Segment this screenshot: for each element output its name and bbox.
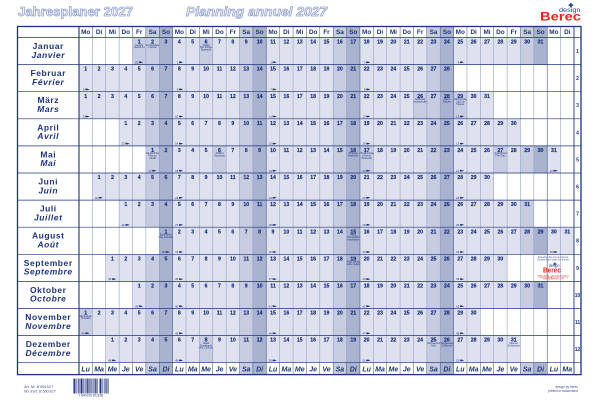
svg-text:6: 6: [205, 284, 208, 290]
svg-text:Do: Do: [402, 29, 411, 36]
svg-text:29: 29: [498, 121, 504, 127]
svg-text:6: 6: [151, 67, 154, 73]
svg-text:No d’art. B 5603/27: No d’art. B 5603/27: [24, 389, 57, 393]
svg-text:So: So: [349, 29, 357, 36]
svg-text:Pâques: Pâques: [443, 101, 452, 103]
svg-text:9: 9: [218, 338, 221, 344]
svg-text:30: 30: [484, 175, 490, 181]
svg-text:22: 22: [390, 256, 396, 262]
svg-text:28: 28: [484, 202, 490, 208]
svg-text:9: 9: [245, 40, 248, 46]
svg-text:24: 24: [444, 284, 450, 290]
svg-text:19: 19: [350, 338, 356, 344]
svg-text:10: 10: [175, 115, 179, 119]
svg-text:1: 1: [124, 202, 127, 208]
svg-text:7: 7: [218, 40, 221, 46]
svg-text:7: 7: [205, 202, 208, 208]
svg-text:17: 17: [456, 142, 460, 146]
svg-text:22: 22: [431, 148, 437, 154]
svg-text:Sa: Sa: [242, 367, 251, 374]
svg-text:15: 15: [270, 311, 276, 317]
svg-text:4: 4: [124, 94, 127, 100]
svg-text:2: 2: [98, 94, 101, 100]
svg-text:So: So: [162, 29, 170, 36]
svg-text:9: 9: [245, 284, 248, 290]
svg-text:Ma: Ma: [188, 367, 198, 374]
svg-text:31: 31: [175, 250, 179, 254]
svg-text:11: 11: [257, 121, 263, 127]
svg-text:9: 9: [191, 311, 194, 317]
svg-text:6: 6: [178, 338, 181, 344]
svg-text:5: 5: [178, 202, 181, 208]
svg-text:30: 30: [524, 40, 530, 46]
svg-text:31: 31: [538, 40, 544, 46]
svg-text:9: 9: [231, 121, 234, 127]
svg-text:10: 10: [243, 121, 249, 127]
svg-text:14: 14: [257, 311, 263, 317]
svg-text:7: 7: [245, 229, 248, 235]
svg-text:15: 15: [324, 40, 330, 46]
svg-text:33: 33: [362, 250, 366, 254]
svg-text:11: 11: [217, 94, 223, 100]
svg-text:18: 18: [175, 169, 179, 173]
svg-text:27: 27: [457, 338, 463, 344]
svg-text:24: 24: [471, 229, 477, 235]
svg-text:8: 8: [205, 256, 208, 262]
svg-text:24: 24: [417, 256, 423, 262]
svg-text:26: 26: [471, 284, 477, 290]
svg-text:24: 24: [390, 311, 396, 317]
svg-text:3: 3: [111, 94, 114, 100]
svg-text:24: 24: [431, 121, 437, 127]
svg-text:31: 31: [538, 284, 544, 290]
svg-text:34: 34: [456, 250, 460, 254]
svg-text:21: 21: [390, 121, 396, 127]
svg-text:4: 4: [165, 121, 168, 127]
svg-text:Mai: Mai: [40, 158, 56, 168]
svg-text:14: 14: [297, 121, 303, 127]
svg-text:2: 2: [165, 148, 168, 154]
svg-text:9: 9: [191, 67, 194, 73]
svg-text:3: 3: [165, 284, 168, 290]
svg-text:10: 10: [270, 148, 276, 154]
svg-text:2: 2: [576, 76, 579, 82]
svg-text:10: 10: [203, 311, 209, 317]
svg-text:Di: Di: [256, 367, 264, 374]
svg-text:Lu: Lu: [456, 367, 465, 374]
svg-text:27: 27: [484, 284, 490, 290]
svg-text:Di: Di: [537, 367, 545, 374]
svg-text:8: 8: [218, 202, 221, 208]
svg-text:19: 19: [364, 202, 370, 208]
svg-text:Sa: Sa: [523, 29, 531, 36]
svg-text:22: 22: [404, 202, 410, 208]
svg-text:Pentecôte: Pentecôte: [361, 157, 372, 160]
svg-text:10: 10: [230, 338, 236, 344]
svg-text:29: 29: [484, 256, 490, 262]
svg-text:Septembre: Septembre: [24, 267, 73, 277]
svg-text:15: 15: [337, 148, 343, 154]
svg-text:5: 5: [151, 175, 154, 181]
svg-text:Sa: Sa: [242, 29, 250, 36]
svg-text:Lu: Lu: [362, 367, 371, 374]
svg-text:19: 19: [377, 40, 383, 46]
svg-text:13: 13: [297, 40, 303, 46]
svg-text:37: 37: [269, 277, 273, 281]
svg-text:14: 14: [270, 175, 276, 181]
svg-text:27: 27: [175, 223, 179, 227]
svg-text:23: 23: [377, 311, 383, 317]
svg-text:Di: Di: [350, 367, 358, 374]
svg-text:17: 17: [350, 40, 356, 46]
svg-text:Rendez-nous visite sur Interne: Rendez-nous visite sur Internet:: [537, 258, 570, 261]
svg-text:26: 26: [498, 229, 504, 235]
svg-text:26: 26: [471, 40, 477, 46]
svg-text:24: 24: [269, 196, 273, 200]
svg-text:12: 12: [257, 338, 263, 344]
svg-text:10: 10: [217, 175, 223, 181]
svg-text:24: 24: [417, 338, 423, 344]
svg-text:6: 6: [576, 184, 579, 190]
svg-text:4: 4: [165, 202, 168, 208]
svg-text:20: 20: [364, 338, 370, 344]
svg-text:46: 46: [269, 331, 273, 335]
svg-text:5: 5: [576, 157, 579, 163]
svg-text:17: 17: [337, 202, 343, 208]
svg-text:Fête-Dieu: Fête-Dieu: [495, 155, 506, 158]
svg-text:10: 10: [230, 256, 236, 262]
svg-text:9: 9: [218, 256, 221, 262]
svg-text:43: 43: [456, 304, 460, 308]
svg-text:Août: Août: [36, 240, 59, 250]
svg-text:29: 29: [511, 284, 517, 290]
svg-text:7: 7: [165, 67, 168, 73]
svg-text:3: 3: [151, 121, 154, 127]
svg-text:Do: Do: [215, 29, 224, 36]
svg-text:Ma: Ma: [469, 367, 479, 374]
svg-text:28: 28: [269, 223, 273, 227]
svg-text:29: 29: [362, 223, 366, 227]
svg-text:Ve: Ve: [416, 367, 424, 374]
svg-text:1: 1: [576, 49, 579, 55]
svg-text:18: 18: [350, 121, 356, 127]
svg-text:4: 4: [191, 148, 194, 154]
svg-text:52: 52: [456, 359, 460, 363]
svg-text:13: 13: [243, 94, 249, 100]
svg-text:12: 12: [230, 67, 236, 73]
svg-text:21: 21: [350, 311, 356, 317]
svg-text:8: 8: [178, 94, 181, 100]
svg-text:Décembre: Décembre: [25, 348, 71, 358]
svg-text:Sa: Sa: [336, 29, 344, 36]
svg-text:18: 18: [310, 94, 316, 100]
svg-text:1: 1: [84, 67, 87, 73]
svg-text:14: 14: [175, 142, 179, 146]
svg-text:Janvier: Janvier: [31, 50, 65, 60]
svg-text:23: 23: [444, 148, 450, 154]
svg-text:Jeûne fédéral: Jeûne fédéral: [346, 263, 360, 266]
svg-text:15: 15: [283, 175, 289, 181]
svg-text:11: 11: [284, 148, 290, 154]
svg-text:30: 30: [162, 250, 166, 254]
svg-text:23: 23: [377, 67, 383, 73]
svg-text:15: 15: [297, 338, 303, 344]
svg-text:11: 11: [243, 338, 249, 344]
svg-text:13: 13: [283, 202, 289, 208]
svg-text:29: 29: [484, 338, 490, 344]
svg-text:20: 20: [390, 284, 396, 290]
svg-text:26: 26: [456, 196, 460, 200]
svg-text:21: 21: [390, 202, 396, 208]
svg-text:18: 18: [324, 175, 330, 181]
svg-text:29: 29: [498, 202, 504, 208]
svg-text:Ve: Ve: [510, 367, 518, 374]
svg-text:Me: Me: [482, 367, 492, 374]
svg-text:2 janvier: 2 janvier: [148, 46, 157, 49]
svg-text:41: 41: [269, 304, 273, 308]
svg-text:Di: Di: [470, 29, 477, 36]
svg-text:Do: Do: [496, 29, 505, 36]
svg-text:23: 23: [404, 338, 410, 344]
svg-text:15: 15: [270, 67, 276, 73]
svg-text:11: 11: [297, 229, 303, 235]
svg-text:4: 4: [178, 284, 181, 290]
svg-text:11: 11: [217, 67, 223, 73]
svg-text:30: 30: [498, 338, 504, 344]
svg-text:11: 11: [269, 115, 272, 119]
svg-text:16: 16: [362, 142, 366, 146]
svg-text:20: 20: [364, 256, 370, 262]
svg-text:23: 23: [417, 202, 423, 208]
svg-text:9: 9: [231, 202, 234, 208]
svg-text:21: 21: [417, 148, 423, 154]
svg-text:21: 21: [404, 40, 410, 46]
svg-text:32: 32: [269, 250, 273, 254]
svg-text:14: 14: [257, 67, 263, 73]
svg-text:25: 25: [362, 196, 366, 200]
svg-text:20: 20: [417, 229, 423, 235]
svg-text:5: 5: [138, 311, 141, 317]
svg-text:20: 20: [337, 67, 343, 73]
svg-text:Sa: Sa: [336, 367, 345, 374]
svg-text:8: 8: [178, 67, 181, 73]
svg-text:6: 6: [151, 94, 154, 100]
svg-text:12: 12: [310, 229, 316, 235]
svg-text:Fr: Fr: [323, 29, 330, 36]
svg-text:8: 8: [576, 239, 579, 245]
svg-text:14: 14: [283, 338, 289, 344]
svg-text:Mo: Mo: [175, 29, 184, 36]
svg-text:16: 16: [283, 311, 289, 317]
svg-text:Mi: Mi: [203, 29, 210, 36]
svg-text:22: 22: [95, 196, 99, 200]
svg-text:Je: Je: [216, 367, 224, 374]
svg-text:Do: Do: [309, 29, 318, 36]
svg-text:Je: Je: [309, 367, 317, 374]
svg-text:22: 22: [377, 175, 383, 181]
svg-text:19: 19: [324, 94, 330, 100]
svg-text:13: 13: [310, 148, 316, 154]
svg-text:16: 16: [324, 121, 330, 127]
svg-text:Je: Je: [497, 367, 505, 374]
svg-text:11: 11: [217, 311, 223, 317]
svg-text:Octobre: Octobre: [30, 294, 66, 304]
svg-text:14: 14: [283, 256, 289, 262]
svg-text:13: 13: [243, 311, 249, 317]
svg-text:9: 9: [576, 266, 579, 272]
svg-text:23: 23: [404, 256, 410, 262]
svg-text:Ma: Ma: [281, 367, 291, 374]
svg-text:11: 11: [230, 175, 236, 181]
svg-text:28: 28: [444, 311, 450, 317]
svg-text:19: 19: [390, 148, 396, 154]
svg-text:Me: Me: [201, 367, 211, 374]
svg-text:26: 26: [122, 223, 126, 227]
svg-text:22: 22: [404, 121, 410, 127]
svg-text:7: 7: [191, 256, 194, 262]
svg-text:30: 30: [524, 284, 530, 290]
svg-text:12: 12: [230, 311, 236, 317]
svg-text:14: 14: [337, 229, 343, 235]
svg-text:29: 29: [511, 40, 517, 46]
svg-text:45: 45: [175, 331, 179, 335]
svg-text:20: 20: [337, 311, 343, 317]
svg-text:Berec: Berec: [543, 268, 561, 275]
svg-text:12: 12: [362, 115, 366, 119]
svg-text:23: 23: [457, 229, 463, 235]
svg-text:So: So: [256, 29, 264, 36]
svg-text:7: 7: [576, 212, 579, 218]
svg-text:17: 17: [337, 121, 343, 127]
svg-text:Sa: Sa: [148, 367, 157, 374]
svg-text:Ve: Ve: [229, 367, 237, 374]
svg-text:30: 30: [471, 311, 477, 317]
svg-text:6: 6: [191, 121, 194, 127]
svg-text:21: 21: [350, 67, 356, 73]
svg-text:11: 11: [257, 202, 263, 208]
svg-text:25: 25: [444, 121, 450, 127]
svg-text:48: 48: [108, 359, 112, 363]
svg-text:16: 16: [324, 202, 330, 208]
svg-text:Avril: Avril: [36, 131, 59, 141]
svg-text:26: 26: [457, 202, 463, 208]
svg-text:So: So: [443, 29, 451, 36]
svg-text:Berec: Berec: [540, 10, 581, 24]
svg-text:18: 18: [364, 40, 370, 46]
svg-text:13: 13: [122, 142, 126, 146]
svg-text:Me: Me: [389, 367, 399, 374]
svg-text:15: 15: [270, 94, 276, 100]
svg-text:3: 3: [151, 202, 154, 208]
svg-text:27: 27: [457, 256, 463, 262]
svg-text:12: 12: [243, 175, 249, 181]
svg-text:28: 28: [471, 256, 477, 262]
svg-text:21: 21: [377, 256, 383, 262]
svg-text:Mo: Mo: [456, 29, 465, 36]
svg-text:5: 5: [205, 148, 208, 154]
svg-text:30: 30: [538, 148, 544, 154]
svg-text:20: 20: [350, 175, 356, 181]
svg-text:3: 3: [124, 175, 127, 181]
svg-text:13: 13: [270, 256, 276, 262]
svg-text:9: 9: [272, 229, 275, 235]
svg-text:2: 2: [138, 202, 141, 208]
svg-text:16: 16: [310, 338, 316, 344]
svg-text:8: 8: [231, 40, 234, 46]
svg-text:2: 2: [178, 229, 181, 235]
svg-text:3: 3: [138, 338, 141, 344]
svg-text:22: 22: [390, 338, 396, 344]
svg-text:16: 16: [337, 284, 343, 290]
svg-text:22: 22: [364, 94, 370, 100]
svg-text:19: 19: [269, 169, 273, 173]
svg-text:printed in switzerland: printed in switzerland: [548, 389, 578, 393]
svg-text:2: 2: [98, 311, 101, 317]
svg-text:Di: Di: [377, 29, 384, 36]
svg-text:26: 26: [484, 148, 490, 154]
svg-text:17: 17: [148, 169, 152, 173]
svg-text:21: 21: [364, 175, 370, 181]
svg-text:28: 28: [498, 40, 504, 46]
svg-text:28: 28: [471, 338, 477, 344]
svg-text:13: 13: [243, 67, 249, 73]
svg-text:7 640105 201198: 7 640105 201198: [78, 394, 103, 398]
svg-text:28: 28: [511, 148, 517, 154]
svg-text:19: 19: [404, 229, 410, 235]
svg-text:Je: Je: [122, 367, 130, 374]
svg-text:Planning annuel 2027: Planning annuel 2027: [186, 5, 328, 19]
svg-text:25: 25: [404, 67, 410, 73]
svg-text:29: 29: [538, 229, 544, 235]
svg-text:Mi: Mi: [483, 29, 490, 36]
svg-text:25: 25: [431, 256, 437, 262]
svg-text:20: 20: [377, 202, 383, 208]
svg-text:10: 10: [257, 40, 263, 46]
svg-text:27: 27: [431, 67, 437, 73]
svg-text:27: 27: [431, 311, 437, 317]
svg-text:12: 12: [283, 284, 289, 290]
svg-text:26: 26: [431, 175, 437, 181]
svg-text:7: 7: [165, 311, 168, 317]
svg-text:Lu: Lu: [550, 367, 559, 374]
svg-text:14: 14: [310, 284, 316, 290]
svg-text:25: 25: [417, 175, 423, 181]
svg-text:16: 16: [297, 175, 303, 181]
svg-text:St-Sylvestre: St-Sylvestre: [508, 344, 521, 347]
svg-text:Jahresplaner 2027: Jahresplaner 2027: [18, 5, 133, 19]
svg-text:29: 29: [524, 148, 530, 154]
svg-text:7: 7: [178, 175, 181, 181]
svg-text:12: 12: [270, 121, 276, 127]
svg-text:27: 27: [431, 94, 437, 100]
svg-text:Mars: Mars: [37, 104, 59, 114]
svg-text:25: 25: [457, 40, 463, 46]
svg-text:12: 12: [257, 256, 263, 262]
svg-text:24: 24: [390, 94, 396, 100]
svg-text:24: 24: [390, 67, 396, 73]
svg-text:21: 21: [404, 284, 410, 290]
svg-text:11: 11: [270, 284, 276, 290]
svg-text:16: 16: [283, 67, 289, 73]
svg-text:5: 5: [178, 121, 181, 127]
svg-text:7: 7: [165, 94, 168, 100]
svg-text:39: 39: [135, 304, 139, 308]
svg-text:5: 5: [165, 256, 168, 262]
svg-text:18: 18: [350, 202, 356, 208]
svg-text:Ve: Ve: [322, 367, 330, 374]
svg-text:Mo: Mo: [549, 29, 558, 36]
svg-text:48: 48: [456, 331, 460, 335]
